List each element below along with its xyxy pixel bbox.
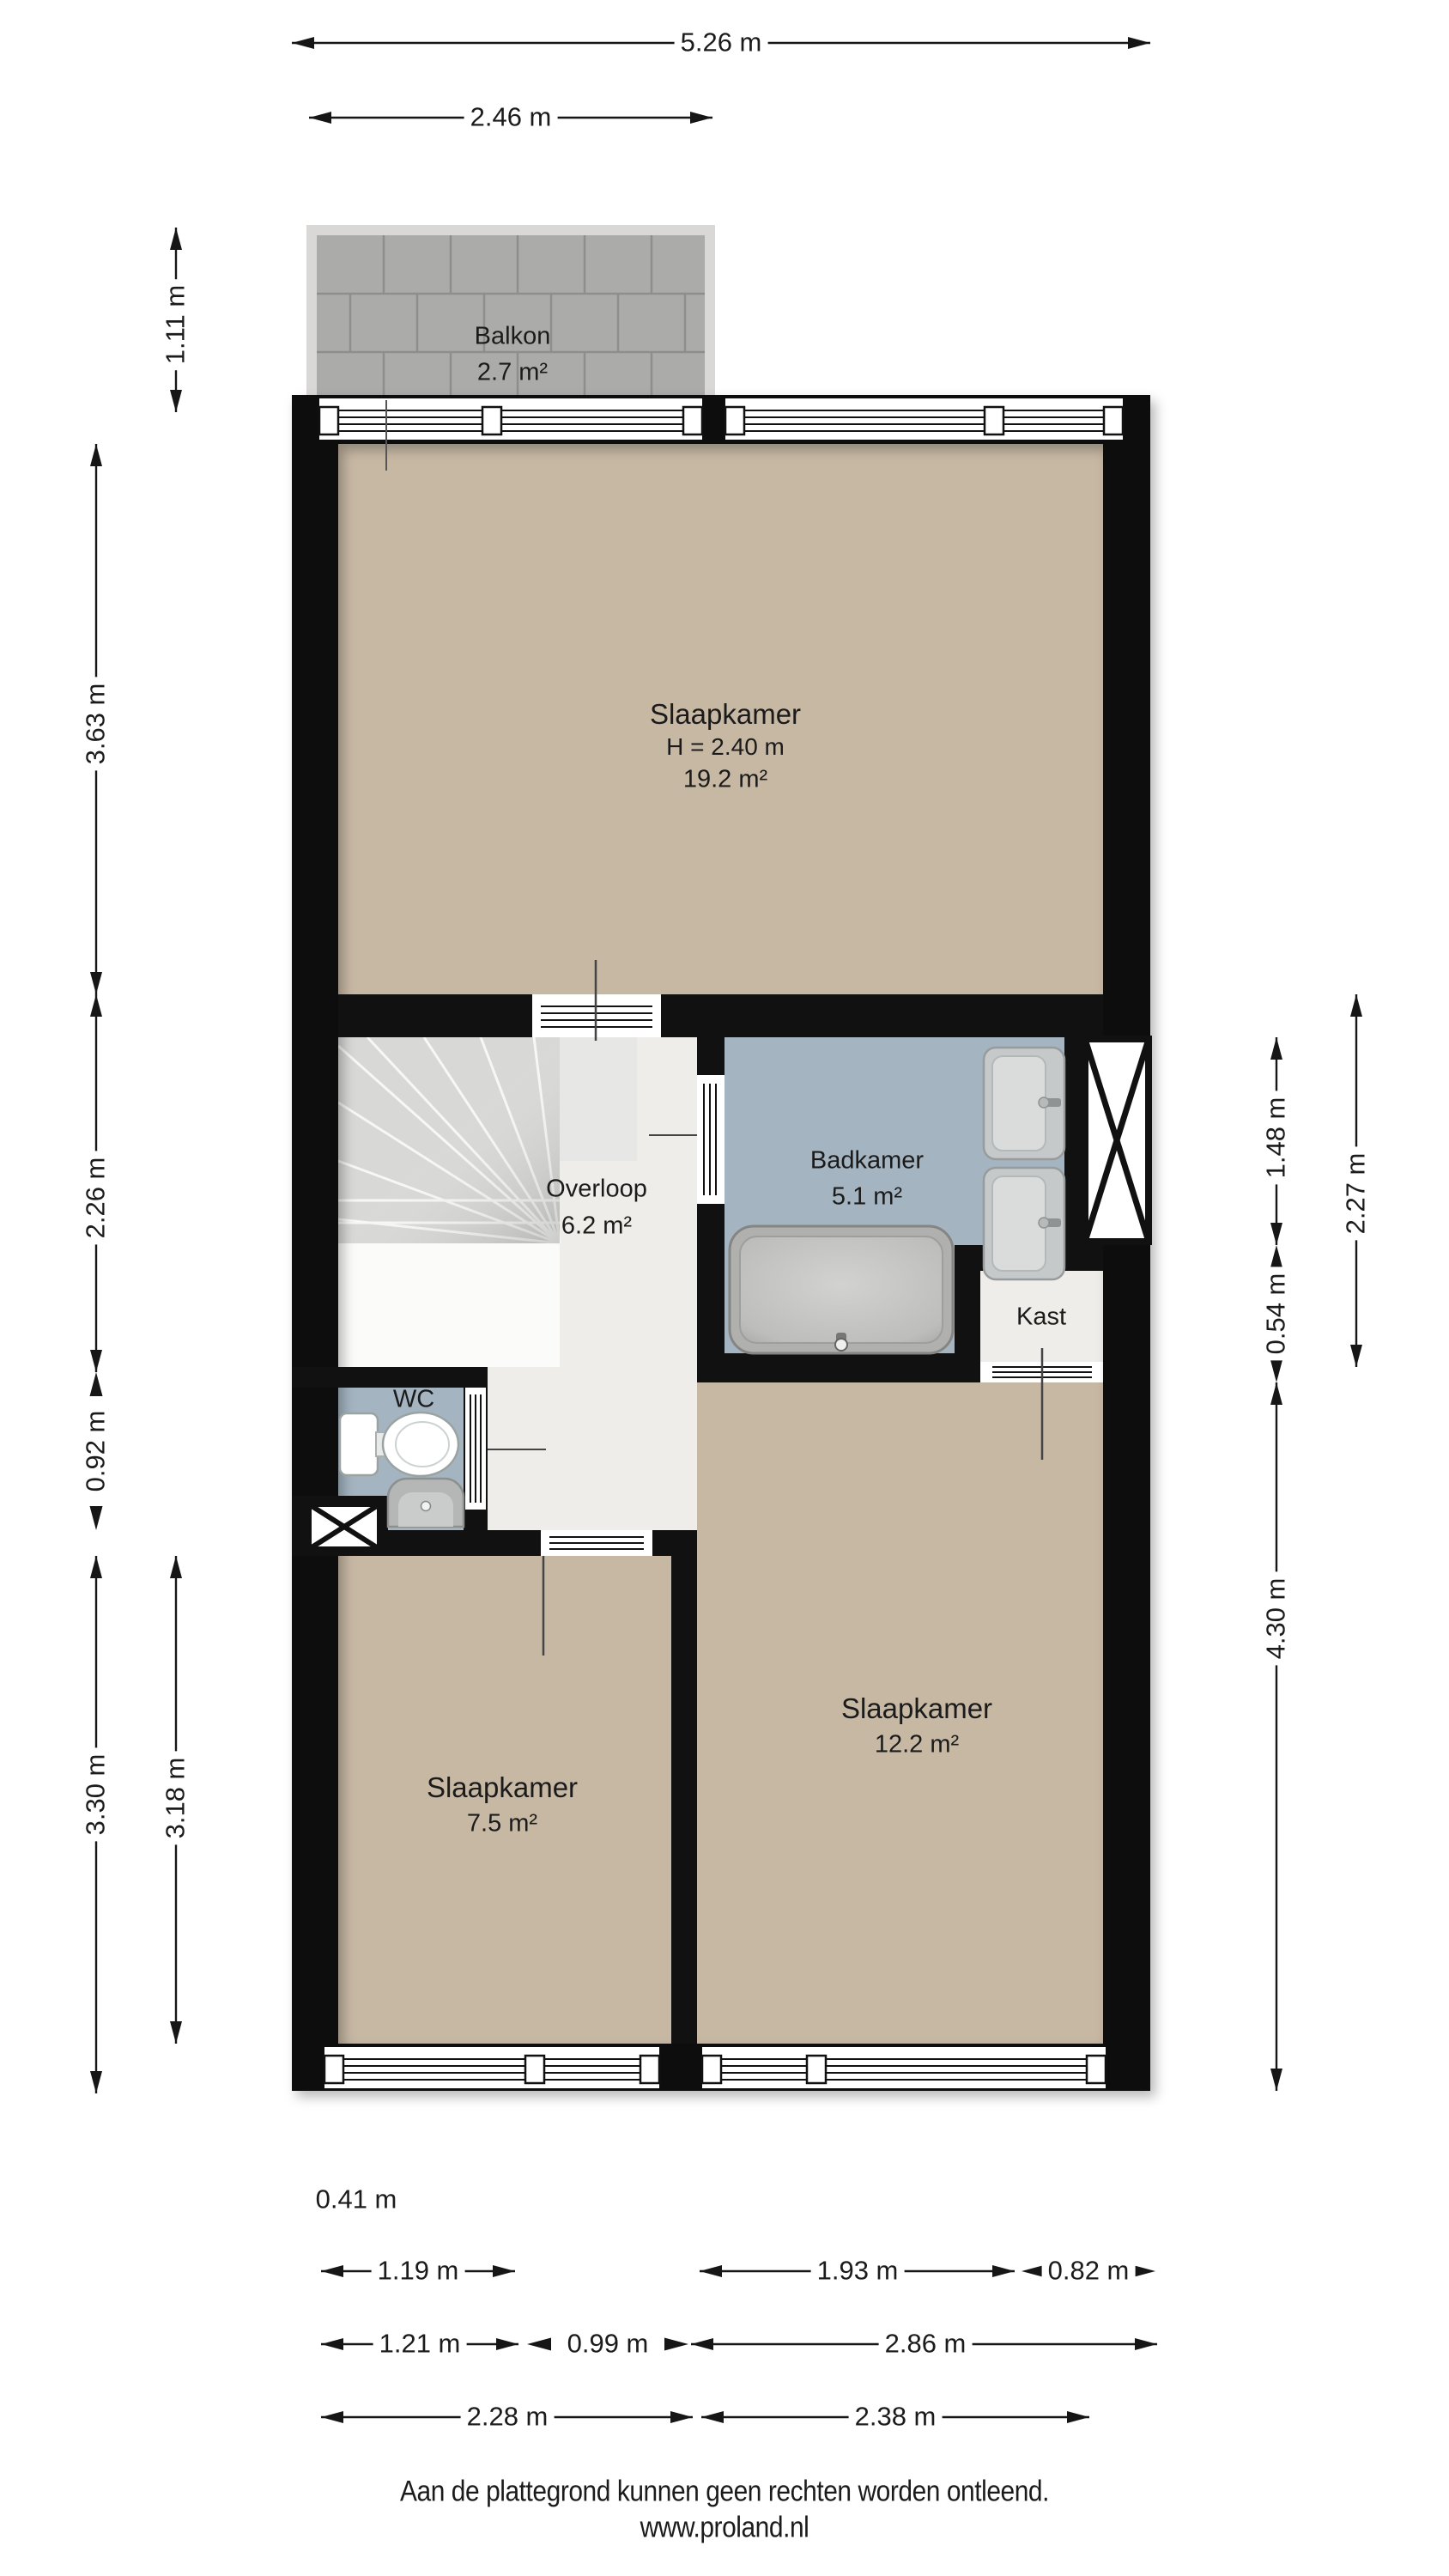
dim-bedroom2-height: 3.30 m (82, 1748, 112, 1842)
closet-label: Kast (1016, 1303, 1066, 1332)
bedroom1-window (725, 398, 1123, 440)
balcony-area: 2.7 m² (477, 359, 548, 387)
dim-balcony-width: 2.46 m (464, 103, 558, 133)
wall-bedroom1-hall (338, 994, 1103, 1037)
sink-icon (984, 1048, 1064, 1159)
balcony-label: Balkon (475, 323, 551, 351)
bedroom3-area: 12.2 m² (875, 1731, 959, 1759)
dim-286: 2.86 m (879, 2330, 973, 2360)
bedroom2-window (324, 2047, 659, 2088)
dim-bathroom-height: 1.48 m (1262, 1091, 1292, 1185)
dim-offset-left: 0.41 m (310, 2185, 403, 2215)
bathroom-area: 5.1 m² (832, 1183, 902, 1212)
disclaimer-text: Aan de plattegrond kunnen geen rechten w… (400, 2476, 1049, 2509)
dim-bedroom1-height: 3.63 m (82, 677, 112, 771)
dim-window-082: 0.82 m (1042, 2257, 1136, 2287)
dim-arrow-099-right (664, 2338, 688, 2351)
wall-wc-top (292, 1367, 488, 1388)
toilet-icon (340, 1413, 458, 1476)
bedroom3-label: Slaapkamer (841, 1692, 992, 1725)
wall-bedroom2-bedroom3 (671, 1556, 697, 2044)
bathtub-icon (730, 1226, 953, 1353)
bedroom2-area: 7.5 m² (467, 1810, 537, 1838)
fountain-sink-icon (388, 1479, 464, 1527)
dim-bedroom2-inner-height: 3.18 m (161, 1752, 191, 1845)
shaft-x-icon (1085, 1039, 1149, 1242)
website-text: www.proland.nl (640, 2512, 809, 2545)
bedroom3-window (702, 2047, 1106, 2088)
bedroom1-ceiling: H = 2.40 m (666, 733, 785, 761)
landing-area: 6.2 m² (561, 1212, 632, 1241)
dim-window-193: 1.93 m (811, 2257, 905, 2287)
dim-total-width: 5.26 m (675, 28, 768, 58)
sink-icon (984, 1168, 1064, 1279)
dim-121: 1.21 m (373, 2330, 467, 2360)
stairs-landing-step (560, 1037, 637, 1161)
bedroom1-label: Slaapkamer (650, 698, 801, 731)
dim-bedroom3-height: 4.30 m (1262, 1572, 1292, 1666)
shaft-x-small-icon (309, 1504, 379, 1549)
dim-bathroom-closet-height: 2.27 m (1342, 1147, 1372, 1241)
floorplan-canvas: Balkon 2.7 m² Slaapkamer H = 2.40 m 19.2… (0, 0, 1449, 2576)
dim-wc-height: 0.92 m (82, 1405, 112, 1498)
dim-window-119: 1.19 m (372, 2257, 465, 2287)
dim-arrow-054-up (1270, 1245, 1283, 1269)
wall-closet-left (955, 1245, 980, 1382)
dim-balcony-depth: 1.11 m (161, 279, 191, 370)
dim-closet-height: 0.54 m (1262, 1267, 1292, 1361)
dim-arrow-099-left (527, 2338, 551, 2351)
dim-hall-height: 2.26 m (82, 1151, 112, 1245)
dim-arrow-092-up (90, 1372, 103, 1396)
floorplan-drawing (0, 0, 1449, 2576)
dim-099: 0.99 m (561, 2330, 655, 2360)
wc-label: WC (393, 1386, 434, 1414)
wall-bathroom-bottom (697, 1353, 955, 1382)
dim-bedroom2-width: 2.28 m (461, 2403, 555, 2433)
dim-arrow-092-down (90, 1506, 103, 1530)
bedroom2-label: Slaapkamer (427, 1771, 578, 1804)
bedroom1-area: 19.2 m² (683, 766, 767, 794)
understairs-floor (338, 1243, 560, 1367)
dim-arrow-054-down (1270, 1358, 1283, 1382)
dim-bedroom3-width: 2.38 m (849, 2403, 943, 2433)
bathroom-label: Badkamer (810, 1147, 924, 1176)
landing-label: Overloop (546, 1176, 647, 1204)
